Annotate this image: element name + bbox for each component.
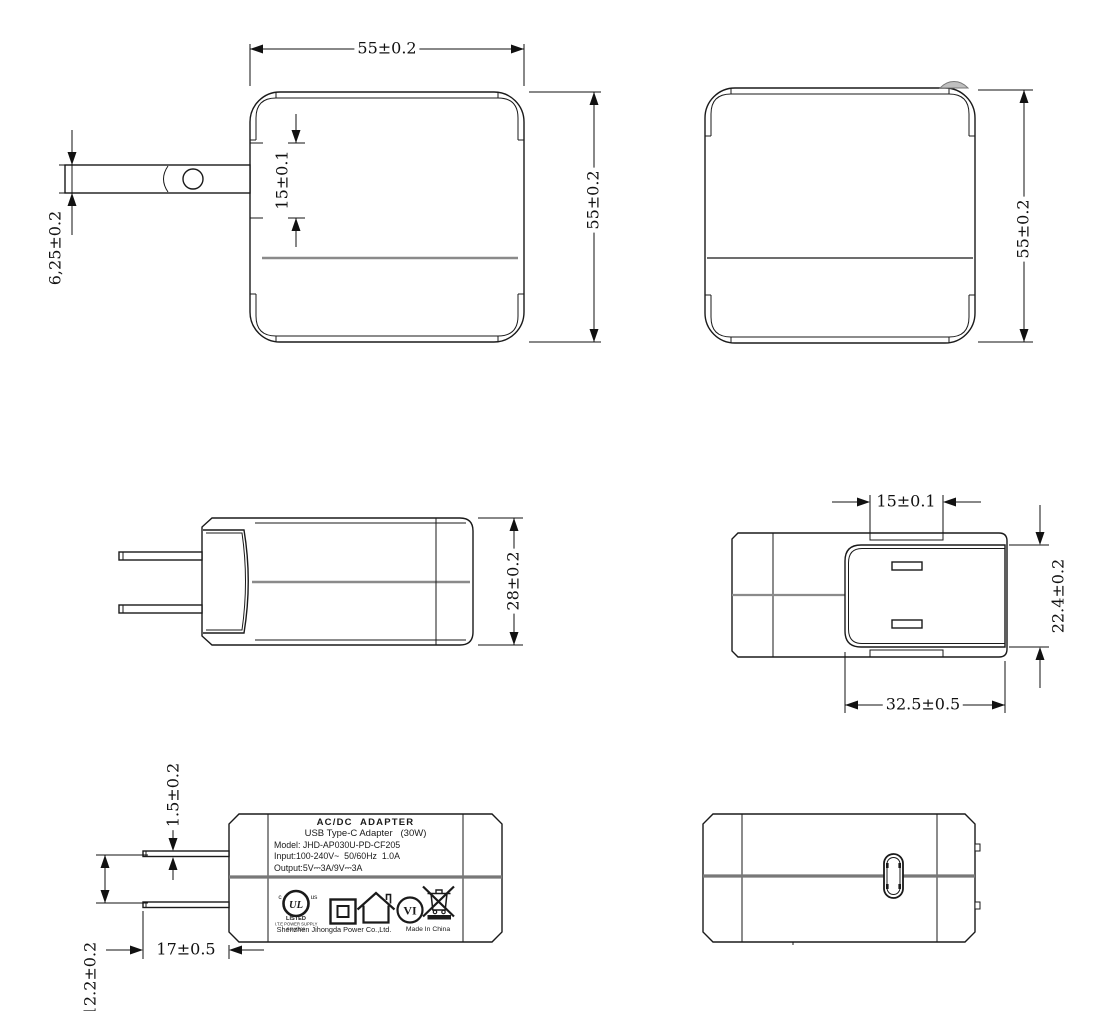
- side-blade-top: [119, 552, 202, 560]
- adapter-rating-label: AC/DC ADAPTER USB Type-C Adapter (30W) M…: [269, 817, 462, 874]
- label-output-rating: Output:5V⎓3A/9V⎓3A: [269, 863, 462, 874]
- label-blade-top: [143, 851, 229, 857]
- usb-c-port: [884, 854, 903, 898]
- output-side-tab-top: [975, 844, 980, 851]
- side-plug-door: [203, 530, 248, 633]
- dim-top-blade-span: 15±0.1: [873, 494, 938, 511]
- top-view: [732, 533, 1007, 657]
- top-blade-slot-2: [892, 620, 922, 628]
- svg-text:c: c: [278, 894, 282, 901]
- label-company: Shenzhen Jihongda Power Co.,Ltd.: [268, 925, 400, 934]
- efficiency-vi-icon: VI: [398, 898, 423, 923]
- label-subtitle: USB Type-C Adapter (30W): [269, 828, 462, 839]
- indoor-use-icon: [358, 893, 395, 923]
- class-ii-icon: [331, 900, 356, 924]
- front-view: [65, 92, 524, 342]
- svg-text:VI: VI: [403, 904, 417, 918]
- dim-front-height: 55±0.2: [586, 167, 603, 232]
- top-view-dimensions: [832, 495, 1049, 713]
- label-origin: Made In China: [400, 926, 456, 933]
- svg-text:us: us: [311, 894, 319, 901]
- back-body-outline: [705, 88, 975, 343]
- front-body-outline: [250, 92, 524, 342]
- output-side-tab-bottom: [975, 902, 980, 909]
- side-blade-bottom: [119, 605, 202, 613]
- weee-bin-icon: [423, 887, 454, 920]
- dim-front-blade-span: 15±0.1: [275, 147, 292, 212]
- technical-drawing-canvas: UL c us LISTED I.T.E POWER SUPPLY 5SM182…: [0, 0, 1100, 1011]
- dim-back-height: 55±0.2: [1016, 196, 1033, 261]
- dim-top-door-height: 22.4±0.2: [1051, 556, 1068, 636]
- dim-top-door-width: 32.5±0.5: [883, 697, 963, 714]
- output-view: [703, 814, 980, 945]
- output-body-outline: [703, 814, 975, 942]
- label-blade-bottom: [143, 902, 229, 908]
- label-model: Model: JHD-AP030U-PD-CF205: [269, 840, 462, 851]
- dim-front-blade-offset: 6,25±0.2: [48, 208, 65, 288]
- label-title: AC/DC ADAPTER: [269, 817, 462, 828]
- dim-front-width: 55±0.2: [354, 41, 419, 58]
- dim-side-height: 28±0.2: [506, 548, 523, 613]
- back-top-tab: [940, 82, 968, 89]
- dim-label-blade-thickness: 1.5±0.2: [166, 760, 183, 830]
- top-plug-door: [845, 545, 1005, 647]
- side-view: [119, 518, 473, 645]
- dim-label-blade-length: 17±0.5: [153, 942, 218, 959]
- svg-text:UL: UL: [289, 900, 303, 911]
- back-view: [705, 82, 975, 344]
- top-blade-slot-1: [892, 562, 922, 570]
- dim-label-blade-gap: 12.2±0.2: [83, 939, 100, 1011]
- label-input-rating: Input:100-240V~ 50/60Hz 1.0A: [269, 851, 462, 862]
- front-plug-blade: [65, 165, 250, 193]
